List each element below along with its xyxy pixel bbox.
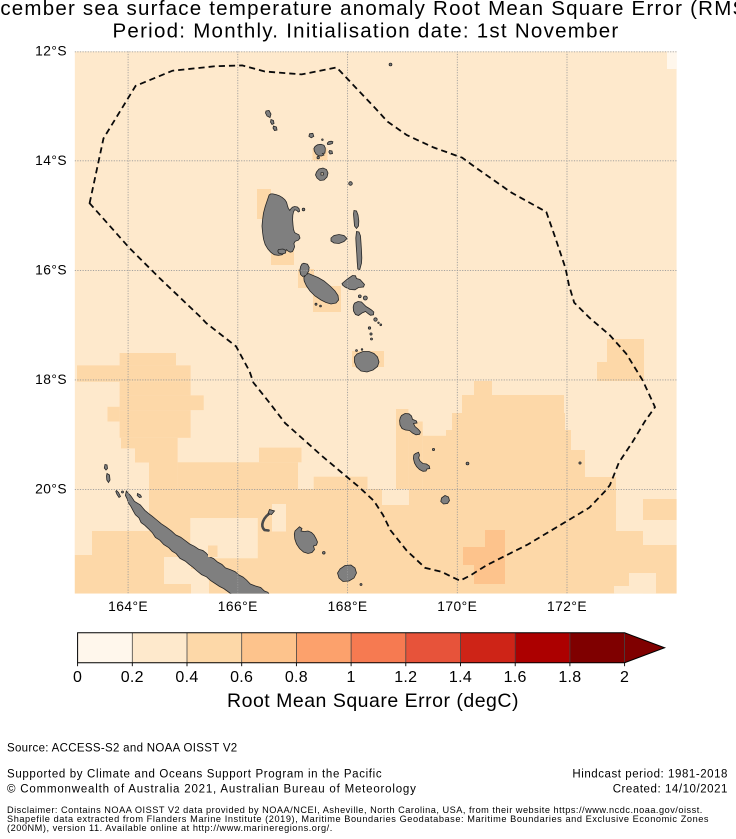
- svg-text:0.8: 0.8: [285, 669, 308, 686]
- svg-text:14°S: 14°S: [35, 153, 67, 168]
- svg-text:172°E: 172°E: [547, 599, 587, 614]
- svg-text:1.4: 1.4: [449, 669, 472, 686]
- svg-text:1.6: 1.6: [504, 669, 527, 686]
- svg-text:Hindcast period: 1981-2018: Hindcast period: 1981-2018: [572, 768, 728, 780]
- svg-text:Root Mean Square Error (degC): Root Mean Square Error (degC): [227, 690, 519, 712]
- svg-text:166°E: 166°E: [218, 599, 258, 614]
- svg-text:164°E: 164°E: [108, 599, 148, 614]
- svg-text:18°S: 18°S: [35, 372, 67, 387]
- svg-text:0.6: 0.6: [230, 669, 253, 686]
- svg-text:Source: ACCESS-S2 and NOAA OIS: Source: ACCESS-S2 and NOAA OISST V2: [7, 743, 238, 755]
- svg-text:170°E: 170°E: [437, 599, 477, 614]
- svg-text:168°E: 168°E: [328, 599, 368, 614]
- svg-text:1: 1: [346, 669, 355, 686]
- svg-text:0.4: 0.4: [175, 669, 198, 686]
- svg-text:12°S: 12°S: [35, 43, 67, 58]
- svg-text:Supported by Climate and Ocean: Supported by Climate and Oceans Support …: [7, 768, 382, 780]
- svg-text:0: 0: [73, 669, 82, 686]
- svg-text:2: 2: [620, 669, 629, 686]
- svg-text:20°S: 20°S: [35, 482, 67, 497]
- svg-text:(200NM), version 11. Available: (200NM), version 11. Available online at…: [7, 823, 333, 833]
- svg-text:Period: Monthly. Initialisatio: Period: Monthly. Initialisation date: 1s…: [112, 20, 619, 43]
- svg-text:December sea surface temperatu: December sea surface temperature anomaly…: [0, 0, 736, 20]
- svg-text:Created: 14/10/2021: Created: 14/10/2021: [613, 783, 728, 795]
- svg-text:© Commonwealth of Australia 20: © Commonwealth of Australia 2021, Austra…: [7, 783, 417, 795]
- svg-text:1.2: 1.2: [394, 669, 417, 686]
- svg-text:16°S: 16°S: [35, 263, 67, 278]
- svg-text:0.2: 0.2: [121, 669, 144, 686]
- svg-text:1.8: 1.8: [558, 669, 581, 686]
